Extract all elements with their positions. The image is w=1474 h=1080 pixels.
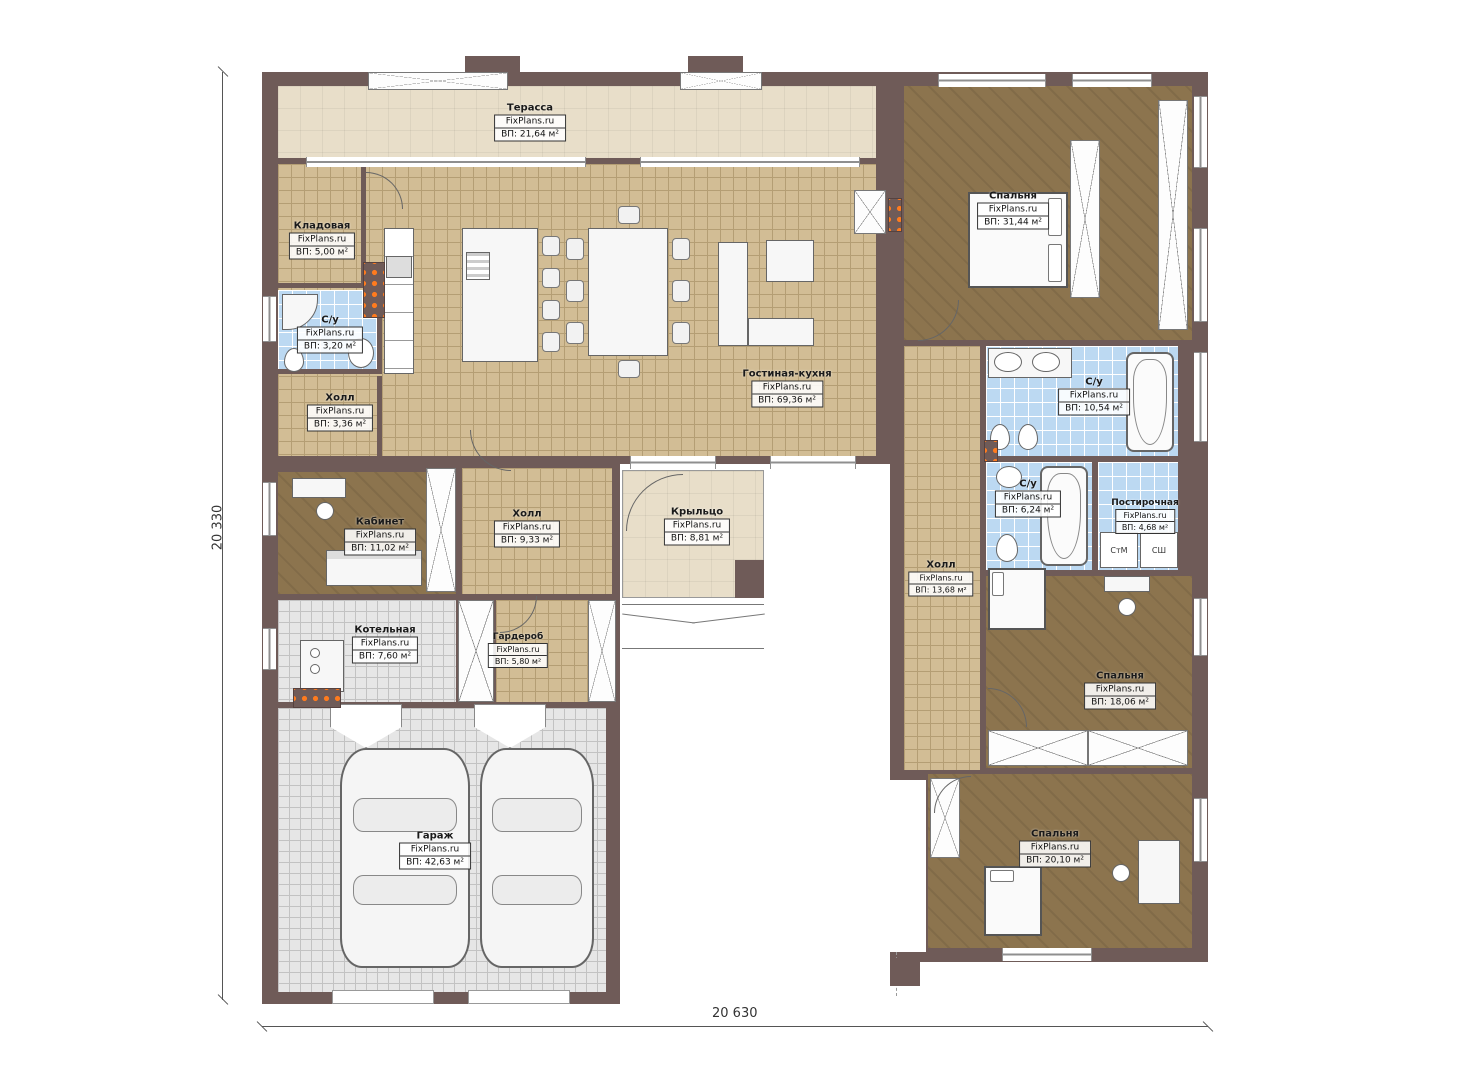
bar-stool [542,332,560,352]
boiler-unit [300,640,344,692]
fireplace [854,190,886,234]
room-hall-right [904,346,980,770]
room-name: Гостиная-кухня [742,369,831,380]
wardrobe-cabinet [1158,100,1188,330]
room-area: ВП: 21,64 м² [495,128,565,141]
wardrobe-cabinet [988,730,1088,766]
room-area: ВП: 31,44 м² [978,216,1048,229]
desk [1104,576,1150,592]
toilet [996,534,1018,562]
room-label-hall-right: Холл FixPlans.ru ВП: 13,68 м² [908,560,973,597]
bidet [1018,424,1038,450]
room-area: ВП: 11,02 м² [345,542,415,555]
pillow [1048,198,1062,236]
room-name: Гардероб [493,632,544,642]
coffee-table [766,240,814,282]
washer-box: СтМ [1100,532,1138,568]
brand: FixPlans.ru [1116,510,1174,521]
room-name: С/у [321,315,339,326]
dryer-label: СШ [1152,546,1166,555]
room-area: ВП: 8,81 м² [665,532,729,545]
window [1194,352,1207,442]
pillow [990,870,1014,882]
room-name: Кладовая [294,221,351,232]
brand: FixPlans.ru [665,520,729,532]
room-name: Холл [325,393,354,404]
room-label-porch: Крыльцо FixPlans.ru ВП: 8,81 м² [664,507,730,546]
room-label-bath-guest: С/у FixPlans.ru ВП: 6,24 м² [995,479,1061,518]
room-name: С/у [1019,479,1037,490]
room-area: ВП: 3,36 м² [308,418,372,431]
room-area: ВП: 10,54 м² [1059,402,1129,415]
chair [1112,864,1130,882]
room-label-bath-master: С/у FixPlans.ru ВП: 10,54 м² [1058,377,1130,416]
room-label-hall-entry: Холл FixPlans.ru ВП: 3,36 м² [307,393,373,432]
dining-chair [566,322,584,344]
chair [1118,598,1136,616]
dining-chair [618,360,640,378]
window [630,456,716,469]
window [770,456,856,469]
brand: FixPlans.ru [1020,842,1090,854]
porch-step [622,648,764,649]
desk [1138,840,1180,904]
wall-pier [890,958,920,986]
room-area: ВП: 4,68 м² [1116,521,1174,533]
tank [310,664,320,674]
kitchen-counter [384,228,414,374]
room-area: ВП: 18,06 м² [1085,696,1155,709]
room-label-bath-entry: С/у FixPlans.ru ВП: 3,20 м² [297,315,363,354]
pillow [1048,244,1062,282]
bathtub [1126,352,1174,452]
room-name: Холл [926,560,955,571]
dim-line-horizontal [262,1026,1208,1027]
dryer-box: СШ [1140,532,1178,568]
room-name: Спальня [989,191,1037,202]
room-label-wardrobe: Гардероб FixPlans.ru ВП: 5,80 м² [488,632,548,668]
washer-label: СтМ [1110,546,1127,555]
sofa [718,242,748,346]
radiator [984,440,998,462]
pillow [992,572,1004,596]
car-rear-window [353,875,456,905]
window [1072,74,1152,87]
wardrobe-cabinet [1070,140,1100,298]
car-windshield [353,798,456,832]
window [1002,948,1092,961]
window [1194,598,1207,656]
car-rear-window [492,875,582,905]
brand: FixPlans.ru [298,328,362,340]
window [938,74,1046,87]
room-area: ВП: 6,24 м² [996,504,1060,517]
room-label-laundry: Постирочная FixPlans.ru ВП: 4,68 м² [1111,498,1178,534]
wardrobe-cabinet [588,600,616,702]
garage-door [332,990,434,1004]
chair [316,502,334,520]
brand: FixPlans.ru [495,116,565,128]
car [480,748,594,968]
brand: FixPlans.ru [489,644,547,655]
terrace-skylight [368,72,508,90]
porch-step [622,604,764,605]
room-name: Холл [512,509,541,520]
bar-stool [542,236,560,256]
brand: FixPlans.ru [308,406,372,418]
room-label-storage: Кладовая FixPlans.ru ВП: 5,00 м² [289,221,355,260]
window [1194,798,1207,862]
room-name: Крыльцо [671,507,723,518]
room-terrace [278,86,876,158]
brand: FixPlans.ru [996,492,1060,504]
brand: FixPlans.ru [400,844,470,856]
terrace-glazing [640,157,860,167]
car-windshield [492,798,582,832]
brand: FixPlans.ru [495,522,559,534]
wardrobe-cabinet [426,468,456,592]
room-label-bedroom-master: Спальня FixPlans.ru ВП: 31,44 м² [977,191,1049,230]
dim-height-label: 20 330 [210,505,225,551]
bathroom-sink [994,352,1022,372]
room-label-hall-center: Холл FixPlans.ru ВП: 9,33 м² [494,509,560,548]
room-area: ВП: 5,80 м² [489,655,547,667]
terrace-skylight [680,72,762,90]
room-area: ВП: 5,00 м² [290,246,354,259]
room-name: Гараж [417,831,454,842]
terrace-glazing [306,157,586,167]
floor-plan: 20 330 20 630 [0,0,1474,1080]
sofa [748,318,814,346]
room-label-office: Кабинет FixPlans.ru ВП: 11,02 м² [344,517,416,556]
brand: FixPlans.ru [752,382,822,394]
dining-chair [672,322,690,344]
room-label-terrace: Терасса FixPlans.ru ВП: 21,64 м² [494,103,566,142]
brand: FixPlans.ru [290,234,354,246]
window [1194,228,1207,322]
brand: FixPlans.ru [978,204,1048,216]
dining-chair [566,238,584,260]
dining-chair [672,238,690,260]
wardrobe-cabinet [1088,730,1188,766]
dim-tick [218,994,229,1005]
brand: FixPlans.ru [353,638,417,650]
room-label-bedroom-middle: Спальня FixPlans.ru ВП: 18,06 м² [1084,671,1156,710]
brand: FixPlans.ru [1085,684,1155,696]
bar-stool [542,268,560,288]
room-name: Постирочная [1111,498,1178,508]
porch-wall-stub [735,560,764,598]
room-area: ВП: 3,20 м² [298,340,362,353]
room-name: С/у [1085,377,1103,388]
room-name: Спальня [1096,671,1144,682]
dining-table [588,228,668,356]
window [263,482,276,536]
brand: FixPlans.ru [1059,390,1129,402]
brand: FixPlans.ru [345,530,415,542]
radiator [293,688,341,708]
dim-width-label: 20 630 [712,1006,758,1021]
garage-door [468,990,570,1004]
room-area: ВП: 69,36 м² [752,394,822,407]
room-name: Котельная [354,625,415,636]
room-label-bedroom-lower: Спальня FixPlans.ru ВП: 20,10 м² [1019,829,1091,868]
room-name: Терасса [507,103,553,114]
room-area: ВП: 42,63 м² [400,856,470,869]
window [1194,96,1207,168]
radiator [363,262,385,318]
dim-tick [218,66,229,77]
room-area: ВП: 7,60 м² [353,650,417,663]
exterior-notch [890,780,926,952]
room-area: ВП: 20,10 м² [1020,854,1090,867]
desk [292,478,346,498]
tank [310,648,320,658]
dining-chair [672,280,690,302]
brand: FixPlans.ru [909,573,972,584]
cooktop [466,252,490,280]
room-name: Кабинет [356,517,404,528]
kitchen-island [462,228,538,362]
room-label-garage: Гараж FixPlans.ru ВП: 42,63 м² [399,831,471,870]
porch-step-chevron [622,614,695,624]
room-label-boiler: Котельная FixPlans.ru ВП: 7,60 м² [352,625,418,664]
room-name: Спальня [1031,829,1079,840]
room-area: ВП: 9,33 м² [495,534,559,547]
bar-stool [542,300,560,320]
dining-chair [566,280,584,302]
dining-chair [618,206,640,224]
porch-step-chevron [692,614,765,624]
kitchen-sink-unit [386,256,412,278]
room-label-living-kitchen: Гостиная-кухня FixPlans.ru ВП: 69,36 м² [742,369,831,408]
window [263,628,276,670]
room-area: ВП: 13,68 м² [909,584,972,596]
radiator [888,198,902,232]
bathroom-sink [1032,352,1060,372]
window [263,296,276,342]
